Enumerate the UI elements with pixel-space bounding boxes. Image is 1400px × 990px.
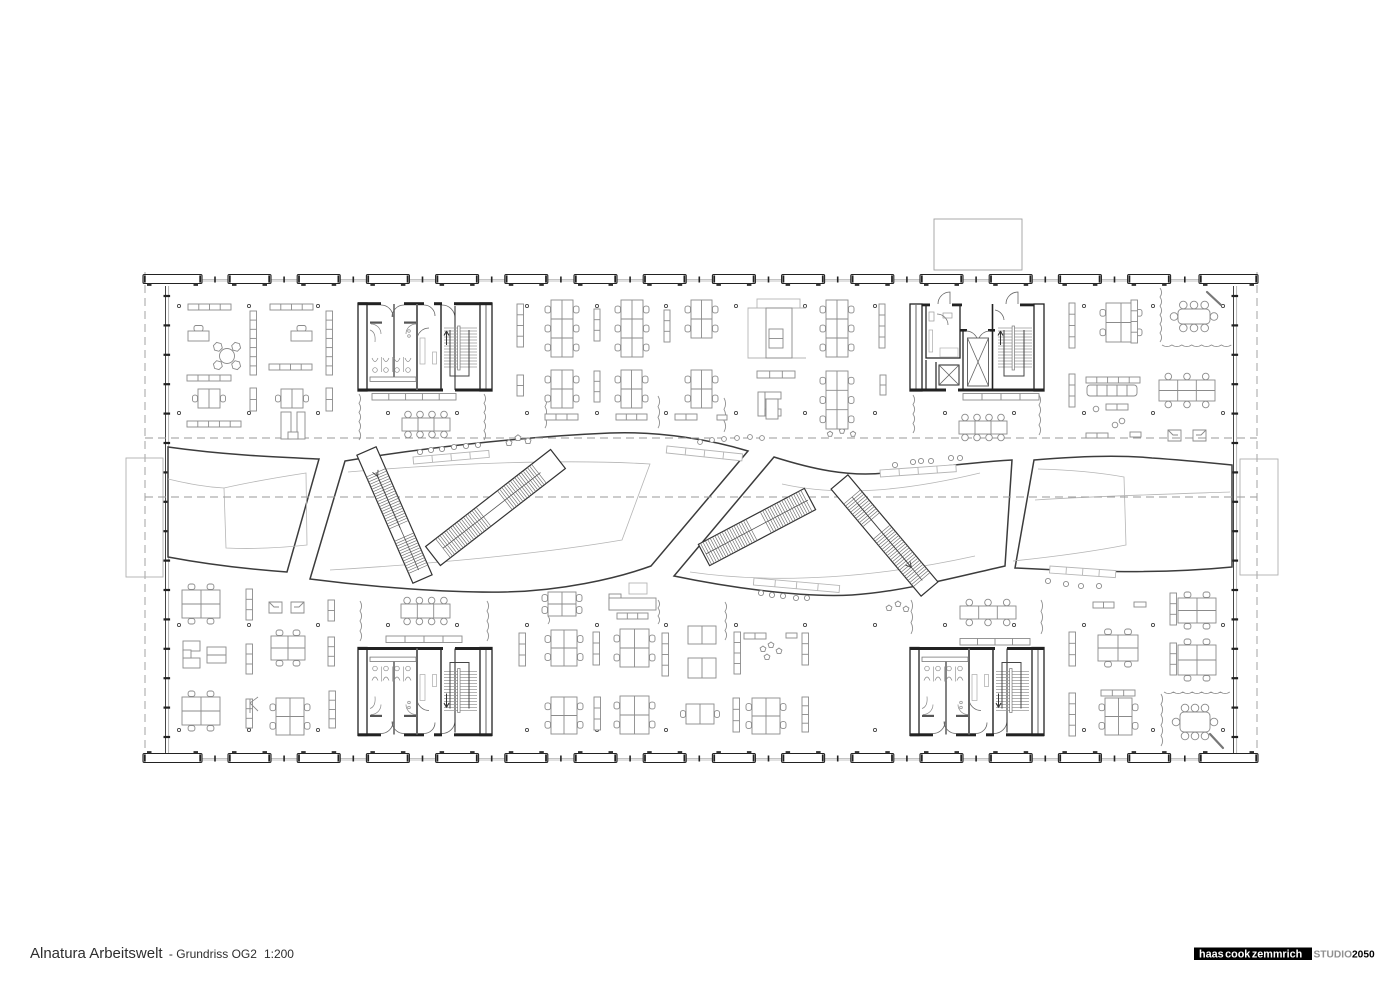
svg-text:Alnatura Arbeitswelt - Grundri: Alnatura Arbeitswelt - Grundriss OG21:20… xyxy=(30,945,294,962)
svg-text:STUDIO2050: STUDIO2050 xyxy=(1314,950,1375,961)
